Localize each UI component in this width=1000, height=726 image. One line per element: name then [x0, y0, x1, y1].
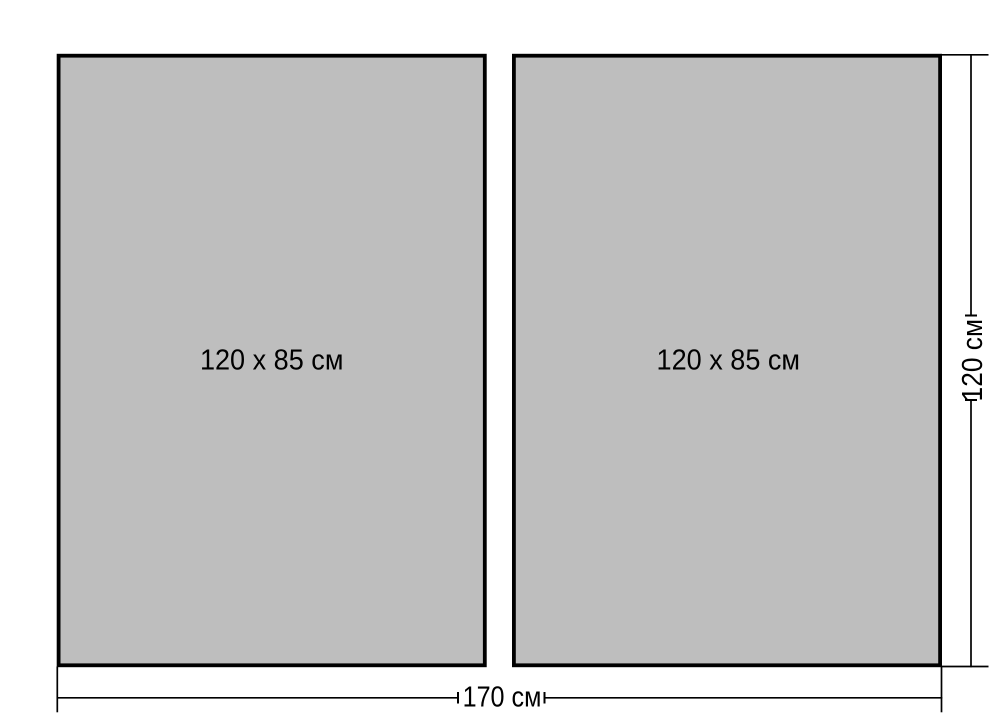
svg-text:170 см: 170 см: [463, 682, 542, 714]
svg-text:120 x 85 см: 120 x 85 см: [200, 345, 344, 377]
svg-text:120 см: 120 см: [957, 319, 989, 402]
svg-text:120 x 85 см: 120 x 85 см: [657, 345, 801, 377]
